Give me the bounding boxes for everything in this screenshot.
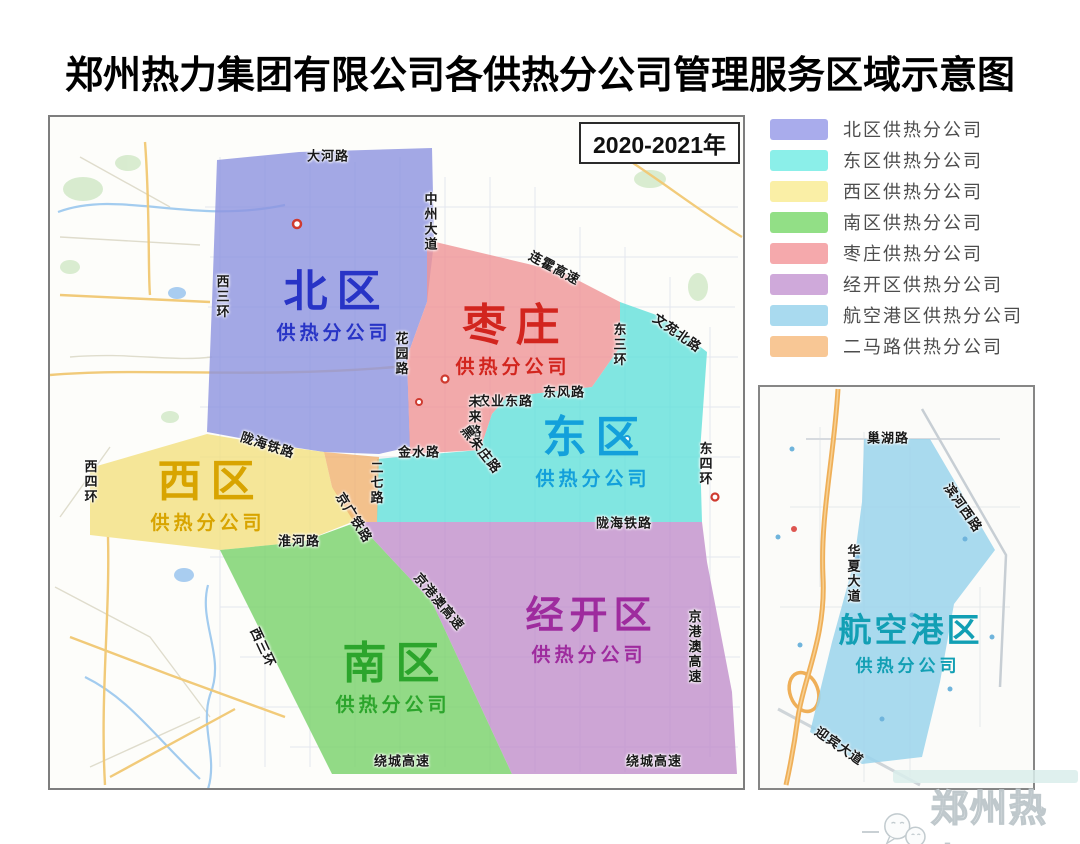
road-label: 西四环 bbox=[81, 460, 100, 505]
main-map-labels: 北区供热分公司枣庄供热分公司东区供热分公司西区供热分公司南区供热分公司经开区供热… bbox=[50, 117, 743, 788]
road-label: 西三环 bbox=[247, 624, 282, 670]
legend-row: 枣庄供热分公司 bbox=[770, 242, 1023, 264]
road-label: 京港澳高速 bbox=[410, 568, 470, 634]
legend-row: 西区供热分公司 bbox=[770, 180, 1023, 202]
road-label: 金水路 bbox=[398, 442, 440, 461]
road-label: 迎宾大道 bbox=[812, 721, 869, 769]
region-label-west: 西区供热分公司 bbox=[150, 459, 261, 535]
legend-swatch bbox=[770, 119, 828, 140]
legend: 北区供热分公司东区供热分公司西区供热分公司南区供热分公司枣庄供热分公司经开区供热… bbox=[770, 118, 1023, 366]
road-label: 大河路 bbox=[307, 146, 349, 165]
road-label: 文苑北路 bbox=[650, 308, 707, 356]
legend-swatch bbox=[770, 274, 828, 295]
road-label: 中州大道 bbox=[421, 192, 440, 252]
road-label: 二七路 bbox=[367, 461, 386, 506]
road-label: 花园路 bbox=[392, 332, 411, 377]
road-label: 农业东路 bbox=[477, 391, 533, 410]
region-label-zaozhuang: 枣庄供热分公司 bbox=[455, 303, 566, 379]
legend-label: 东区供热分公司 bbox=[843, 147, 983, 173]
legend-swatch bbox=[770, 150, 828, 171]
legend-label: 二马路供热分公司 bbox=[843, 333, 1003, 359]
legend-swatch bbox=[770, 181, 828, 202]
legend-label: 航空港区供热分公司 bbox=[843, 302, 1023, 328]
legend-label: 北区供热分公司 bbox=[843, 116, 983, 142]
legend-swatch bbox=[770, 336, 828, 357]
mini-map-labels: 航空港区供热分公司巢湖路滨河西路华夏大道迎宾大道 bbox=[760, 387, 1033, 788]
legend-row: 经开区供热分公司 bbox=[770, 273, 1023, 295]
region-label-jingkai: 经开区供热分公司 bbox=[525, 597, 648, 667]
legend-label: 枣庄供热分公司 bbox=[843, 240, 983, 266]
main-map-panel: 北区供热分公司枣庄供热分公司东区供热分公司西区供热分公司南区供热分公司经开区供热… bbox=[48, 115, 745, 790]
legend-swatch bbox=[770, 243, 828, 264]
road-label: 淮河路 bbox=[278, 531, 320, 550]
watermark: 郑州热力 bbox=[862, 778, 1080, 844]
page: 郑州热力集团有限公司各供热分公司管理服务区域示意图 bbox=[0, 0, 1080, 844]
legend-swatch bbox=[770, 305, 828, 326]
road-label: 京港澳高速 bbox=[685, 610, 704, 685]
region-label-north: 北区供热分公司 bbox=[276, 269, 387, 345]
legend-swatch bbox=[770, 212, 828, 233]
region-label-south: 南区供热分公司 bbox=[335, 641, 446, 717]
road-label: 华夏大道 bbox=[844, 544, 863, 604]
mini-map-panel: 航空港区供热分公司巢湖路滨河西路华夏大道迎宾大道 bbox=[758, 385, 1035, 790]
region-label-airport: 航空港区供热分公司 bbox=[839, 614, 974, 677]
road-label: 连霍高速 bbox=[526, 245, 584, 288]
watermark-text: 郑州热力 bbox=[931, 778, 1080, 844]
road-label: 绕城高速 bbox=[374, 751, 430, 770]
legend-row: 二马路供热分公司 bbox=[770, 335, 1023, 357]
road-label: 东三环 bbox=[610, 323, 629, 368]
road-label: 东风路 bbox=[543, 382, 585, 401]
road-label: 东四环 bbox=[696, 442, 715, 487]
legend-row: 北区供热分公司 bbox=[770, 118, 1023, 140]
year-label: 2020-2021年 bbox=[579, 122, 740, 164]
page-title: 郑州热力集团有限公司各供热分公司管理服务区域示意图 bbox=[0, 51, 1080, 101]
road-label: 绕城高速 bbox=[626, 751, 682, 770]
road-label: 陇海铁路 bbox=[596, 513, 652, 532]
watermark-line bbox=[862, 831, 879, 833]
legend-label: 经开区供热分公司 bbox=[843, 271, 1003, 297]
legend-row: 东区供热分公司 bbox=[770, 149, 1023, 171]
legend-row: 南区供热分公司 bbox=[770, 211, 1023, 233]
legend-row: 航空港区供热分公司 bbox=[770, 304, 1023, 326]
region-label-east: 东区供热分公司 bbox=[535, 415, 646, 491]
legend-label: 西区供热分公司 bbox=[843, 178, 983, 204]
road-label: 巢湖路 bbox=[867, 428, 909, 447]
wechat-icon bbox=[881, 809, 931, 844]
road-label: 滨河西路 bbox=[940, 479, 988, 536]
road-label: 西三环 bbox=[213, 275, 232, 320]
legend-label: 南区供热分公司 bbox=[843, 209, 983, 235]
